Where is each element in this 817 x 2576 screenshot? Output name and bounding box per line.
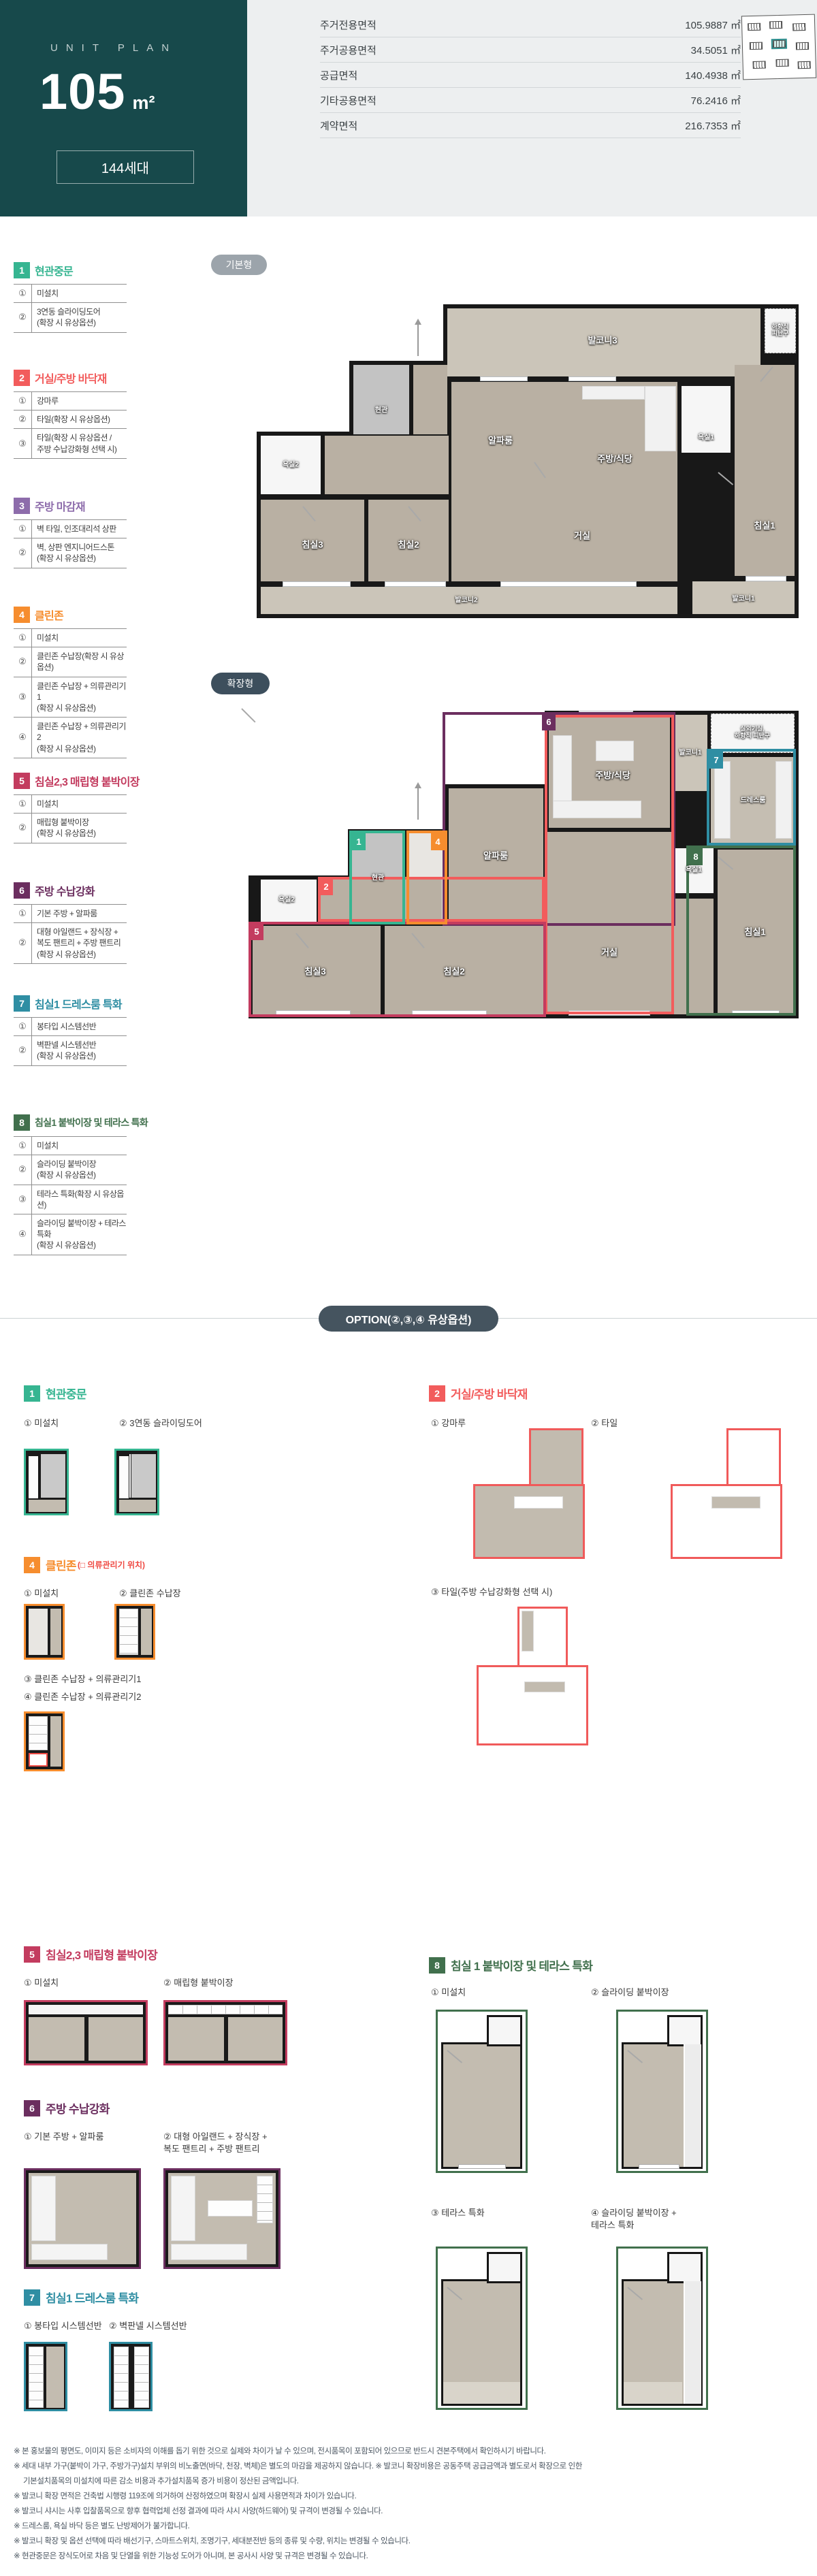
extended-plan-pill: 확장형 bbox=[211, 673, 270, 694]
area-value: 105.9887 ㎡ bbox=[685, 18, 741, 32]
room-label: 거실 bbox=[601, 948, 618, 959]
unit-size-unit: m² bbox=[132, 93, 155, 114]
sidebar-section-1: 1 현관중문 ①미설치 ②3연동 슬라이딩도어 (확장 시 유상옵션) bbox=[14, 262, 127, 333]
spec-row: ①강마루 bbox=[14, 392, 127, 410]
table-row: 주거전용면적 105.9887 ㎡ bbox=[320, 12, 741, 37]
thumb-cleanzone-1 bbox=[24, 1604, 65, 1660]
option-item: ② 벽판넬 시스템선반 bbox=[109, 2320, 187, 2332]
section-title: 침실1 붙박이장 및 테라스 특화 bbox=[35, 1116, 148, 1129]
option-section-1-header: 1 현관중문 bbox=[24, 1385, 86, 1402]
section-title: 주방 마감재 bbox=[35, 498, 85, 514]
section-title: 침실2,3 매립형 붙박이장 bbox=[35, 773, 140, 789]
spec-row: ①미설치 bbox=[14, 629, 127, 647]
spec-row: ④슬라이딩 붙박이장 + 테라스 특화 (확장 시 유상옵션) bbox=[14, 1214, 127, 1255]
spec-row: ②벽판넬 시스템선반 (확장 시 유상옵션) bbox=[14, 1036, 127, 1065]
sidebar-section-7: 7 침실1 드레스룸 특화 ①봉타입 시스템선반 ②벽판넬 시스템선반 (확장 … bbox=[14, 995, 127, 1066]
sidebar-section-3: 3 주방 마감재 ①벽 타일, 인조대리석 상판 ②벽, 상판 엔지니어드스톤 … bbox=[14, 498, 127, 568]
marker-1: 1 bbox=[352, 833, 366, 850]
marker-8: 8 bbox=[689, 848, 703, 865]
room-label: 알파룸 bbox=[488, 436, 513, 447]
marker-4: 4 bbox=[431, 833, 445, 850]
area-label: 공급면적 bbox=[320, 68, 357, 82]
unit-size: 105 m² bbox=[39, 63, 155, 120]
room-bath1 bbox=[682, 386, 731, 453]
unit-size-number: 105 bbox=[39, 63, 125, 120]
section-title: 클린존 bbox=[35, 607, 63, 623]
room-label: 하향식 피난구 bbox=[772, 323, 789, 338]
room-label: 침실3 bbox=[302, 541, 323, 551]
spec-row: ②대형 아일랜드 + 장식장 + 복도 팬트리 + 주방 팬트리 (확장 시 유… bbox=[14, 923, 127, 964]
thumb-cleanzone-2 bbox=[114, 1604, 155, 1660]
room-label: 주방/식당 bbox=[595, 771, 630, 782]
thumb-dress-1 bbox=[24, 2342, 67, 2411]
room-label: 발코니1 bbox=[679, 749, 701, 757]
household-count-box: 144세대 bbox=[57, 150, 194, 184]
footnote-line: ※ 현관중문은 장식도어로 차음 및 단열을 위한 기능성 도어가 아니며, 본… bbox=[14, 2549, 807, 2564]
sidebar-section-5: 5 침실2,3 매립형 붙박이장 ①미설치 ②매립형 붙박이장 (확장 시 유상… bbox=[14, 773, 127, 843]
room-label: 침실1 bbox=[744, 928, 765, 938]
section-badge: 5 bbox=[14, 773, 30, 789]
room-label: 욕실2 bbox=[278, 896, 295, 904]
section-badge: 1 bbox=[14, 262, 30, 278]
sidebar-section-8: 8 침실1 붙박이장 및 테라스 특화 ①미설치 ②슬라이딩 붙박이장 (확장 … bbox=[14, 1114, 127, 1255]
spec-row: ④클린존 수납장 + 의류관리기 2 (확장 시 유상옵션) bbox=[14, 718, 127, 758]
thumb-entrance-1 bbox=[24, 1449, 69, 1515]
table-row: 계약면적 216.7353 ㎡ bbox=[320, 113, 741, 138]
room-label: 침실2 bbox=[443, 967, 464, 978]
option-item: ② 슬라이딩 붙박이장 bbox=[591, 1986, 669, 1999]
option-section-8-header: 8 침실 1 붙박이장 및 테라스 특화 bbox=[429, 1957, 592, 1974]
option-item: ③ 타일(주방 수납강화형 선택 시) bbox=[431, 1586, 552, 1598]
spec-row: ②슬라이딩 붙박이장 (확장 시 유상옵션) bbox=[14, 1155, 127, 1185]
marker-7: 7 bbox=[709, 752, 723, 769]
option-item: ② 클린존 수납장 bbox=[119, 1588, 181, 1600]
marker-2: 2 bbox=[319, 878, 333, 895]
north-arrow-icon bbox=[417, 784, 419, 820]
spec-row: ②매립형 붙박이장 (확장 시 유상옵션) bbox=[14, 814, 127, 843]
thumb-bed1-4 bbox=[616, 2247, 708, 2410]
footnote-line: ※ 발코니 샤시는 사후 입찰품목으로 향후 협력업체 선정 결과에 따라 샤시… bbox=[14, 2504, 807, 2519]
option-item: ① 강마루 bbox=[431, 1417, 466, 1430]
area-value: 216.7353 ㎡ bbox=[685, 118, 741, 133]
thumb-builtin-2 bbox=[163, 2000, 287, 2065]
spec-row: ③클린존 수납장 + 의류관리기1 (확장 시 유상옵션) bbox=[14, 677, 127, 718]
unit-plan-page: UNIT PLAN 105 m² 144세대 주거전용면적 105.9887 ㎡… bbox=[0, 0, 817, 2576]
footnote-line: 기본설치품목의 미설치에 따른 감소 비용과 추가설치품목 증가 비용이 정산된… bbox=[14, 2474, 807, 2489]
footnotes: ※ 본 홍보물의 평면도, 이미지 등은 소비자의 이해를 돕기 위한 것으로 … bbox=[14, 2444, 807, 2564]
thumb-builtin-1 bbox=[24, 2000, 148, 2065]
option-item: ① 미설치 bbox=[431, 1986, 466, 1999]
section-badge: 7 bbox=[14, 995, 30, 1012]
section-badge: 3 bbox=[14, 498, 30, 514]
unit-plan-eyebrow: UNIT PLAN bbox=[50, 42, 177, 54]
room-label: 알파룸 bbox=[483, 852, 508, 862]
footnote-line: ※ 발코니 확장 면적은 건축법 시행령 119조에 의거하여 산정하였으며 확… bbox=[14, 2489, 807, 2504]
option-item: ④ 클린존 수납장 + 의류관리기2 bbox=[24, 1691, 141, 1703]
option-item: ② 타일 bbox=[591, 1417, 618, 1430]
thumb-bed1-2 bbox=[616, 2010, 708, 2173]
spec-row: ③테라스 특화(확장 시 유상옵션) bbox=[14, 1185, 127, 1214]
option-section-5-header: 5 침실2,3 매립형 붙박이장 bbox=[24, 1946, 157, 1963]
table-row: 주거공용면적 34.5051 ㎡ bbox=[320, 37, 741, 63]
sidebar-section-4: 4 클린존 ①미설치 ②클린존 수납장(확장 시 유상옵션) ③클린존 수납장 … bbox=[14, 607, 127, 758]
spec-row: ①미설치 bbox=[14, 285, 127, 303]
spec-row: ③타일(확장 시 유상옵션 / 주방 수납강화형 선택 시) bbox=[14, 429, 127, 458]
room-label: 주방/식당 bbox=[597, 455, 632, 465]
footnote-line: ※ 드레스룸, 욕실 바닥 등은 별도 난방제어가 불가합니다. bbox=[14, 2519, 807, 2534]
spec-row: ①벽 타일, 인조대리석 상판 bbox=[14, 520, 127, 538]
room-label: 실외기실, 하향식 피난구 bbox=[735, 726, 770, 740]
option-item: ① 기본 주방 + 알파룸 bbox=[24, 2131, 103, 2143]
table-row: 기타공용면적 76.2416 ㎡ bbox=[320, 88, 741, 113]
section-title: 거실/주방 바닥재 bbox=[35, 370, 107, 386]
room-label: 현관 bbox=[372, 874, 384, 882]
section-badge: 6 bbox=[14, 882, 30, 899]
thumb-bed1-1 bbox=[436, 2010, 528, 2173]
diagram-floor-tile-kitchen bbox=[477, 1607, 592, 1750]
north-arrow-icon bbox=[417, 321, 419, 356]
area-value: 76.2416 ㎡ bbox=[691, 93, 741, 108]
spec-row: ②클린존 수납장(확장 시 유상옵션) bbox=[14, 647, 127, 677]
room-open-living-kitchen bbox=[451, 382, 677, 581]
overlay-2-kitchen bbox=[545, 715, 674, 1014]
option-section-4-header: 4 클린존 (□ 의류관리기 위치) bbox=[24, 1556, 145, 1573]
room-label: 욕실1 bbox=[698, 434, 714, 442]
diagram-floor-tile bbox=[671, 1428, 786, 1561]
room-label: 드레스룸 bbox=[741, 796, 766, 805]
option-item: ② 3연동 슬라이딩도어 bbox=[119, 1417, 202, 1430]
overlay-5 bbox=[249, 922, 546, 1017]
marker-6: 6 bbox=[542, 713, 556, 730]
area-value: 34.5051 ㎡ bbox=[691, 43, 741, 57]
footnote-line: ※ 세대 내부 가구(붙박이 가구, 주방가구)설치 부위의 비노출면(바닥, … bbox=[14, 2459, 807, 2474]
area-label: 계약면적 bbox=[320, 118, 357, 133]
overlay-8 bbox=[686, 846, 796, 1016]
footnote-line: ※ 본 홍보물의 평면도, 이미지 등은 소비자의 이해를 돕기 위한 것으로 … bbox=[14, 2444, 807, 2459]
option-section-7-header: 7 침실1 드레스룸 특화 bbox=[24, 2289, 138, 2306]
spec-row: ①봉타입 시스템선반 bbox=[14, 1018, 127, 1036]
room-label: 욕실1 bbox=[686, 866, 702, 874]
diagram-floor-kangmaru bbox=[473, 1428, 589, 1561]
option-item: ③ 테라스 특화 bbox=[431, 2207, 485, 2219]
room-bed1 bbox=[735, 365, 795, 576]
section-badge: 2 bbox=[14, 370, 30, 386]
thumb-bed1-3 bbox=[436, 2247, 528, 2410]
option-item: ① 미설치 bbox=[24, 1588, 59, 1600]
option-item: ③ 클린존 수납장 + 의류관리기1 bbox=[24, 1673, 141, 1686]
room-label: 발코니3 bbox=[588, 336, 617, 347]
room-label: 거실 bbox=[574, 532, 590, 542]
option-section-6-header: 6 주방 수납강화 bbox=[24, 2099, 110, 2116]
option-item: ① 봉타입 시스템선반 bbox=[24, 2320, 102, 2332]
cleanzone-suffix: (□ 의류관리기 위치) bbox=[78, 1559, 145, 1571]
option-item: ④ 슬라이딩 붙박이장 + 테라스 특화 bbox=[591, 2207, 677, 2231]
room-entrance bbox=[353, 365, 409, 434]
room-label: 욕실2 bbox=[283, 461, 299, 469]
spec-row: ①기본 주방 + 알파룸 bbox=[14, 905, 127, 923]
option-item: ① 미설치 bbox=[24, 1417, 59, 1430]
option-item: ① 미설치 bbox=[24, 1977, 59, 1989]
room-label: 침실3 bbox=[304, 967, 325, 978]
thumb-dress-2 bbox=[109, 2342, 153, 2411]
section-badge: 8 bbox=[14, 1114, 30, 1131]
area-label: 기타공용면적 bbox=[320, 93, 377, 108]
floor-plan-extended: 6 2 5 8 7 1 4 주방/식당 발코니1 실외기실, 하향식 피난구 드… bbox=[242, 708, 803, 1025]
sidebar-section-2: 2 거실/주방 바닥재 ①강마루 ②타일(확장 시 유상옵션) ③타일(확장 시… bbox=[14, 370, 127, 459]
area-table: 주거전용면적 105.9887 ㎡ 주거공용면적 34.5051 ㎡ 공급면적 … bbox=[320, 12, 741, 138]
footnote-line: ※ 발코니 확장 및 옵션 선택에 따라 배선기구, 스마트스위치, 조명기구,… bbox=[14, 2534, 807, 2549]
hero-panel: UNIT PLAN 105 m² 144세대 bbox=[0, 0, 247, 216]
option-item: ② 대형 아일랜드 + 장식장 + 복도 팬트리 + 주방 팬트리 bbox=[163, 2131, 268, 2155]
floor-plan-basic: 발코니3 하향식 피난구 현관 알파룸 주방/식당 욕실1 욕실2 침실3 침실… bbox=[242, 302, 803, 618]
thumb-entrance-2 bbox=[114, 1449, 159, 1515]
site-map bbox=[741, 14, 816, 80]
room-label: 침실2 bbox=[398, 541, 419, 551]
spec-row: ②3연동 슬라이딩도어 (확장 시 유상옵션) bbox=[14, 303, 127, 332]
section-title: 주방 수납강화 bbox=[35, 882, 95, 899]
spec-row: ①미설치 bbox=[14, 1137, 127, 1155]
section-title: 현관중문 bbox=[35, 262, 73, 278]
section-badge: 4 bbox=[14, 607, 30, 623]
room-label: 침실1 bbox=[754, 521, 775, 532]
site-map-highlighted-building bbox=[773, 40, 786, 48]
sidebar-section-6: 6 주방 수납강화 ①기본 주방 + 알파룸 ②대형 아일랜드 + 장식장 + … bbox=[14, 882, 127, 964]
option-banner: OPTION(②,③,④ 유상옵션) bbox=[319, 1306, 498, 1332]
table-row: 공급면적 140.4938 ㎡ bbox=[320, 63, 741, 88]
option-section-2-header: 2 거실/주방 바닥재 bbox=[429, 1385, 528, 1402]
area-label: 주거전용면적 bbox=[320, 18, 377, 32]
thumb-kitchen-1 bbox=[24, 2168, 141, 2269]
marker-5: 5 bbox=[250, 923, 263, 940]
room-label: 발코니1 bbox=[732, 595, 754, 603]
section-title: 침실1 드레스룸 특화 bbox=[35, 995, 122, 1012]
room-label: 발코니2 bbox=[455, 596, 477, 605]
spec-row: ②타일(확장 시 유상옵션) bbox=[14, 410, 127, 429]
area-label: 주거공용면적 bbox=[320, 43, 377, 57]
thumb-cleanzone-3 bbox=[24, 1711, 65, 1771]
basic-plan-pill: 기본형 bbox=[211, 255, 267, 275]
room-label: 현관 bbox=[375, 406, 387, 415]
spec-row: ②벽, 상판 엔지니어드스톤 (확장 시 유상옵션) bbox=[14, 538, 127, 568]
spec-row: ①미설치 bbox=[14, 795, 127, 814]
thumb-kitchen-2 bbox=[163, 2168, 281, 2269]
area-value: 140.4938 ㎡ bbox=[685, 68, 741, 82]
option-item: ② 매립형 붙박이장 bbox=[163, 1977, 234, 1989]
